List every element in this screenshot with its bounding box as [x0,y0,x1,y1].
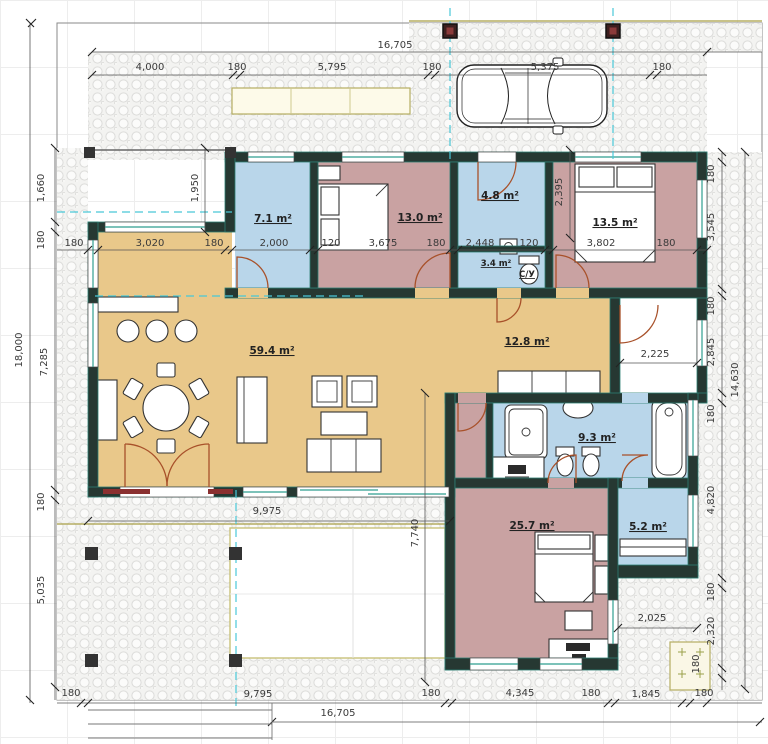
dim-label: 5,795 [318,62,347,73]
dim-right-total: 14,630 [730,363,741,398]
dim-label: 2,845 [706,338,717,367]
coffee-table [321,412,367,435]
wall-accent [103,489,150,494]
dim-label: 180 [61,688,80,699]
dim-label: 4,345 [506,688,535,699]
room-label-living: 59.4 m² [249,345,295,357]
kitchen-island [237,377,267,443]
terrace-post [229,654,242,667]
nightstand [595,566,608,594]
dim-label: 2,025 [638,613,667,624]
room-label-bath: 9.3 m² [578,432,616,444]
dim-label: 3,675 [369,238,398,249]
dim-label: 180 [36,492,47,511]
dim-label: 1,950 [190,174,201,203]
room-label-entry: 4.8 m² [481,190,519,202]
dining-table [143,385,189,431]
window [243,487,287,497]
window [575,152,641,162]
dim-label: 180 [421,688,440,699]
dim-label: 180 [652,62,671,73]
dim-label: 1,660 [36,174,47,203]
carport-post [606,24,620,38]
dim-label: 180 [64,238,83,249]
bathtub [652,399,686,479]
window [540,658,582,670]
dim-label: 120 [519,238,538,249]
dim-label: 180 [691,654,702,673]
room-label-bedroom3: 25.7 m² [509,520,555,532]
dim-label: 180 [227,62,246,73]
dim-label: 2,448 [466,238,495,249]
car-mirror [553,126,563,134]
dim-label: 180 [426,238,445,249]
dim-label: 180 [581,688,600,699]
footing-pad [670,642,710,690]
planter-box [232,88,410,114]
section-steps [88,703,272,740]
dim-label: 2,395 [554,178,565,207]
dim-label: 180 [656,238,675,249]
wardrobe-floor [235,162,310,288]
dim-label: 3,802 [587,238,616,249]
entry-floor [458,162,545,246]
window [688,400,698,456]
entry-door-opening [478,152,516,162]
porch-post [84,147,95,158]
window [248,152,294,162]
vanity [492,457,544,479]
nightstand [595,535,608,561]
dim-label: 120 [321,238,340,249]
dim-label: 5,035 [36,576,47,605]
terrace-post [85,654,98,667]
dim-left-total: 18,000 [14,333,25,368]
terrace-post [229,547,242,560]
dim-label: 2,320 [706,617,717,646]
window [608,600,618,644]
window [688,495,698,547]
room-label-wc: 3.4 m² [481,259,512,269]
window [88,240,98,288]
window [105,222,205,232]
shower [505,405,547,459]
carport-post [443,24,457,38]
dim-label: 180 [694,688,713,699]
floor-plan-drawing: 16,705 4,000 180 5,795 180 5,375 180 180… [0,0,768,744]
porch-post [225,147,236,158]
bar-stool [117,320,139,342]
dim-label: 7,740 [410,519,421,548]
window [470,658,518,670]
room-label-bedroom2: 13.5 m² [592,217,638,229]
dim-label: 180 [706,404,717,423]
window [88,303,98,367]
bar-stool [175,320,197,342]
room-label-bedroom1: 13.0 m² [397,212,443,224]
room-label-hall: 12.8 m² [504,336,550,348]
corridor-floor [620,298,697,393]
bed-double-2 [535,532,593,602]
sofa [307,439,381,472]
dim-label: 180 [706,164,717,183]
dim-label: 180 [706,296,717,315]
dim-label: 9,795 [244,689,273,700]
dim-top-total: 16,705 [378,40,413,51]
window [342,152,404,162]
dim-label: 3,545 [706,213,717,242]
dim-label: 3,020 [136,238,165,249]
side-table [565,611,592,630]
terrace-post [85,547,98,560]
dim-label: 5,375 [531,62,560,73]
dim-label: 180 [706,582,717,601]
room-tag-wc: С/У [519,270,535,280]
floor-plan-canvas: 16,705 4,000 180 5,795 180 5,375 180 180… [0,0,768,744]
wc-bidet [582,447,600,476]
dim-label: 1,845 [632,689,661,700]
dim-label: 4,820 [706,486,717,515]
room-label-wardrobe: 7.1 m² [254,213,292,225]
dim-label: 9,975 [253,506,282,517]
kitchen-counter [98,297,178,312]
dim-label: 7,285 [39,348,50,377]
dim-label: 4,000 [136,62,165,73]
closet-shelf [620,539,686,556]
dim-label: 2,000 [260,238,289,249]
room-label-closet: 5.2 m² [629,521,667,533]
hall-wardrobe [498,371,600,393]
bar-stool [146,320,168,342]
dim-label: 180 [36,230,47,249]
dim-label: 180 [422,62,441,73]
dim-label: 2,225 [641,349,670,360]
dim-label: 180 [204,238,223,249]
wall-accent [208,489,233,494]
dim-bottom-total: 16,705 [321,708,356,719]
sliding-door [297,487,449,497]
